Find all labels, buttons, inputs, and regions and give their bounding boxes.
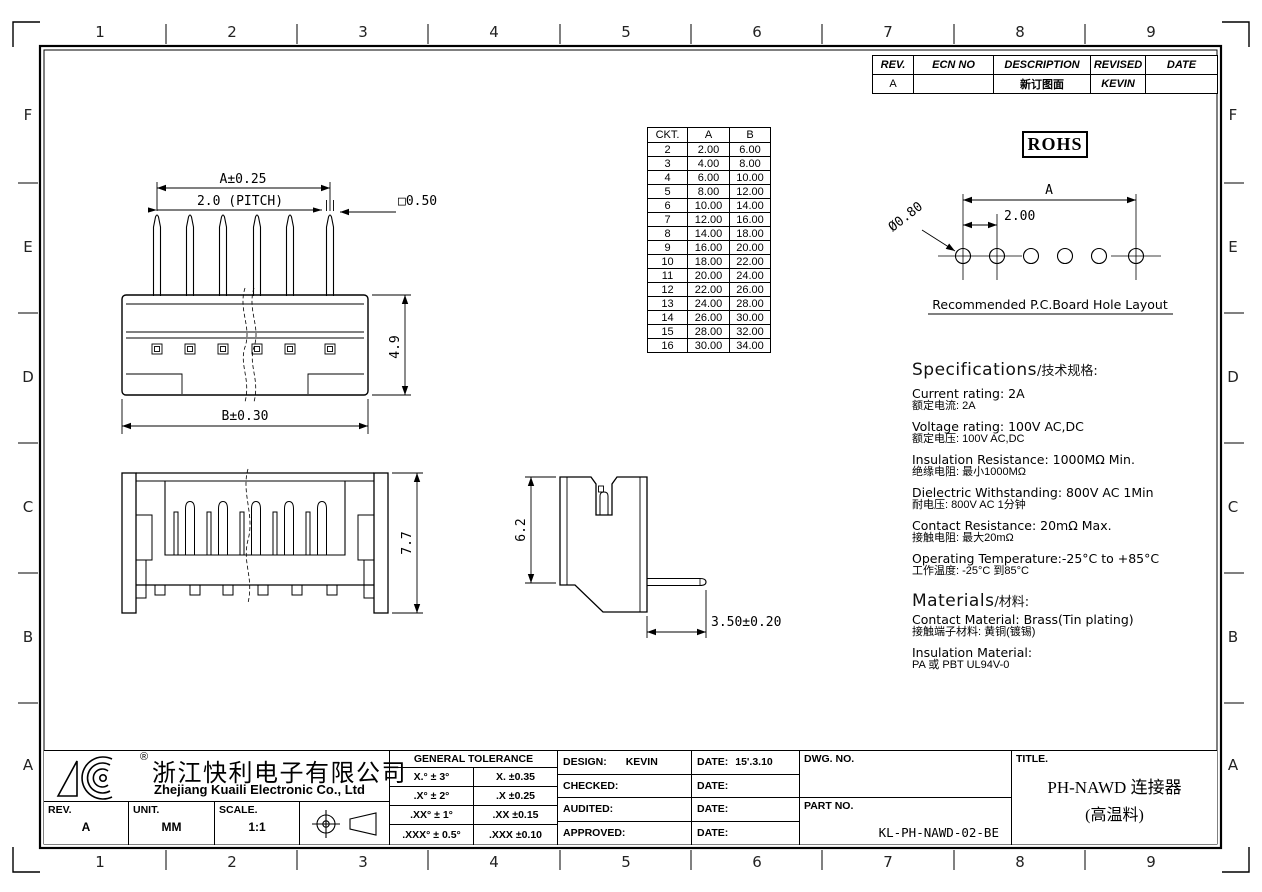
cell: KEVIN [1091,75,1146,94]
specs-heading-zh: /技术规格: [1037,364,1098,379]
cell: 28.00 [730,297,771,311]
cell: 24.00 [730,269,771,283]
approval-row: APPROVED: DATE: [558,822,799,846]
approval-label: DESIGN: [563,756,607,768]
materials-heading-zh: /材料: [994,595,1029,610]
spec-zh: 接触端子材料: 黄铜(镀锡) [912,626,1230,639]
grid-col-label: 8 [1015,853,1025,871]
cell: 6.00 [688,171,730,185]
grid-row-label: C [23,498,33,516]
title-block: ® 浙江快利电子有限公司 Zhejiang Kuaili Electronic … [44,750,1217,844]
grid-col-label: 2 [227,23,237,41]
cell: 22.00 [688,283,730,297]
rohs-label: ROHS [1027,134,1082,155]
tolerance-section: GENERAL TOLERANCE X.° ± 3° X. ±0.35 .X° … [390,751,558,845]
grid-row-label: E [1228,238,1237,256]
dim-label-pitch: 2.0 (PITCH) [197,194,283,209]
grid-col-label: 9 [1146,853,1156,871]
cell: 9 [648,241,688,255]
cell: 32.00 [730,325,771,339]
tolerance-row: .XX° ± 1° .XX ±0.15 [390,806,557,825]
drawing-title-line2: (高温料) [1012,801,1217,825]
column-header: REVISED [1091,56,1146,75]
cell: 14 [648,311,688,325]
approval-row: CHECKED: DATE: [558,775,799,799]
grid-row-label: A [23,756,33,774]
cell: 10 [648,255,688,269]
approval-date-cell: DATE: [692,822,799,846]
title-section: TITLE. PH-NAWD 连接器 (高温料) [1012,751,1217,845]
table-row: 610.0014.00 [648,199,771,213]
spec-en: Voltage rating: 100V AC,DC [912,420,1230,433]
materials-heading-en: Materials [912,591,994,611]
approval-label-cell: AUDITED: [558,798,692,821]
table-row: 46.0010.00 [648,171,771,185]
dim-label-span: A±0.25 [220,172,267,187]
cell: 4 [648,171,688,185]
grid-col-label: 9 [1146,23,1156,41]
corner-mark [1222,22,1249,47]
grid-col-label: 4 [489,853,499,871]
rev-value: A [44,820,128,834]
approval-row: AUDITED: DATE: [558,798,799,822]
approval-row: DESIGN: KEVIN DATE: 15'.3.10 [558,751,799,775]
specifications-section: Specifications/技术规格: Current rating: 2A额… [912,360,1230,672]
cell: 24.00 [688,297,730,311]
tolerance-row: X.° ± 3° X. ±0.35 [390,768,557,787]
connector-pins [154,215,334,296]
cell: .XX° ± 1° [390,806,474,824]
cell: 12 [648,283,688,297]
grid-col-label: 7 [883,23,893,41]
table-row: 916.0020.00 [648,241,771,255]
part-no-value: KL-PH-NAWD-02-BE [800,825,999,840]
rev-label: REV. [48,804,72,816]
cell: 13 [648,297,688,311]
dim-label-pin: □0.50 [398,194,437,209]
spec-item: Current rating: 2A额定电流: 2A [912,387,1230,413]
part-no-label: PART NO. [804,800,853,812]
table-row: 22.006.00 [648,143,771,157]
scale-cell: SCALE. 1:1 [215,802,300,845]
cell: 16.00 [730,213,771,227]
grid-col-label: 1 [95,23,105,41]
cell: .X° ± 2° [390,787,474,805]
cell: .XXX° ± 0.5° [390,825,474,845]
approval-section: DESIGN: KEVIN DATE: 15'.3.10 CHECKED: DA… [558,751,800,845]
cell: 6.00 [730,143,771,157]
table-row: 1630.0034.00 [648,339,771,353]
spec-en: Operating Temperature:-25°C to +85°C [912,552,1230,565]
column-header: A [688,128,730,143]
materials-heading: Materials/材料: [912,591,1230,611]
dimension-lines [525,477,706,638]
cell: 20.00 [730,241,771,255]
spec-en: Contact Material: Brass(Tin plating) [912,613,1230,626]
cell: 12.00 [730,185,771,199]
table-row: 1324.0028.00 [648,297,771,311]
approval-date-cell: DATE: 15'.3.10 [692,751,799,774]
approval-date-cell: DATE: [692,798,799,821]
column-header: CKT. [648,128,688,143]
dim-label-height: 4.9 [388,335,403,358]
ckt-table: CKT. A B 22.006.00 34.008.00 46.0010.00 … [647,127,771,353]
cell: 14.00 [688,227,730,241]
date-label: DATE: [697,780,728,792]
connector-housing [122,469,388,613]
dimension-lines [922,200,1136,251]
spec-item: Operating Temperature:-25°C to +85°C工作温度… [912,552,1230,578]
projection-cell [300,802,389,845]
cell [914,75,994,94]
pin-tail [647,579,706,586]
table-row: 58.0012.00 [648,185,771,199]
grid-col-label: 8 [1015,23,1025,41]
cell: 15 [648,325,688,339]
dim-label-hole-dia: Ø0.80 [886,199,926,235]
scale-label: SCALE. [219,804,258,816]
tolerance-row: .XXX° ± 0.5° .XXX ±0.10 [390,825,557,845]
hole-layout-caption: Recommended P.C.Board Hole Layout [932,297,1168,312]
dwg-no-cell: DWG. NO. [800,751,1011,798]
spec-item: Insulation Resistance: 1000MΩ Min.绝缘电阻: … [912,453,1230,479]
hole-crosshairs [938,194,1161,280]
housing-tabs [155,585,337,595]
front-view-drawing: A±0.25 2.0 (PITCH) □0.50 4.9 B±0.30 [100,155,460,445]
cell: 8 [648,227,688,241]
company-logo-icon [50,754,150,800]
cell: 8.00 [688,185,730,199]
grid-col-label: 7 [883,853,893,871]
cell: 28.00 [688,325,730,339]
date-label: DATE: [697,756,728,768]
cell: 4.00 [688,157,730,171]
cell: 3 [648,157,688,171]
connector-body [122,288,368,402]
cell: 2 [648,143,688,157]
dim-label-height: 6.2 [514,518,529,541]
grid-row-label: F [1229,106,1238,124]
grid-col-label: 3 [358,853,368,871]
drawing-title-line1: PH-NAWD 连接器 [1012,773,1217,798]
grid-col-label: 3 [358,23,368,41]
grid-col-label: 5 [621,23,631,41]
table-row: 1120.0024.00 [648,269,771,283]
approval-label-cell: APPROVED: [558,822,692,846]
material-item: Contact Material: Brass(Tin plating)接触端子… [912,613,1230,639]
column-header: DATE [1146,56,1218,75]
table-row: 1426.0030.00 [648,311,771,325]
dwg-no-label: DWG. NO. [804,753,854,765]
spec-en: Insulation Material: [912,646,1230,659]
dim-label-height: 7.7 [400,531,415,554]
cell: 6 [648,199,688,213]
table-row: 1528.0032.00 [648,325,771,339]
cell: 18.00 [730,227,771,241]
spec-zh: 额定电流: 2A [912,400,1230,413]
approval-label: CHECKED: [563,780,618,792]
column-header: DESCRIPTION [994,56,1091,75]
cell: 26.00 [688,311,730,325]
spec-en: Dielectric Withstanding: 800V AC 1Min [912,486,1230,499]
cell: 7 [648,213,688,227]
spec-zh: 额定电压: 100V AC,DC [912,433,1230,446]
cell: 16 [648,339,688,353]
cell: 新订图面 [994,75,1091,94]
dim-label-span: A [1045,183,1053,198]
approval-date-cell: DATE: [692,775,799,798]
grid-col-label: 1 [95,853,105,871]
corner-mark [13,22,40,47]
cell: 34.00 [730,339,771,353]
date-value: 15'.3.10 [735,756,773,768]
grid-col-label: 5 [621,853,631,871]
cell: 11 [648,269,688,283]
corner-mark [13,847,40,872]
drawing-sheet: 1 2 3 4 5 6 7 8 9 1 2 3 4 5 6 7 8 9 F E … [0,0,1262,892]
connector-profile [560,477,706,612]
grid-row-label: F [24,106,33,124]
cell: 30.00 [730,311,771,325]
cell: 22.00 [730,255,771,269]
specifications-heading: Specifications/技术规格: [912,360,1230,380]
column-header: ECN NO [914,56,994,75]
cell: X.° ± 3° [390,768,474,786]
spec-item: Contact Resistance: 20mΩ Max.接触电阻: 最大20m… [912,519,1230,545]
table-row: 1018.0022.00 [648,255,771,269]
spec-en: Insulation Resistance: 1000MΩ Min. [912,453,1230,466]
spec-zh: 绝缘电阻: 最小1000MΩ [912,466,1230,479]
cell: 2.00 [688,143,730,157]
cell: A [873,75,914,94]
spec-zh: 接触电阻: 最大20mΩ [912,532,1230,545]
approval-label-cell: DESIGN: KEVIN [558,751,692,774]
grid-row-label: B [23,628,33,646]
cell: 5 [648,185,688,199]
cell: 10.00 [688,199,730,213]
cell: .X ±0.25 [474,790,557,802]
table-row: A 新订图面 KEVIN [873,75,1218,94]
cell: 30.00 [688,339,730,353]
cell: 10.00 [730,171,771,185]
dim-label-width: B±0.30 [222,409,269,424]
approval-label: APPROVED: [563,827,625,839]
cell: 12.00 [688,213,730,227]
rev-cell: REV. A [44,802,129,845]
table-row: 1222.0026.00 [648,283,771,297]
company-section: ® 浙江快利电子有限公司 Zhejiang Kuaili Electronic … [44,751,390,845]
projection-symbol-icon [306,805,386,843]
cell [1146,75,1218,94]
tolerance-row: .X° ± 2° .X ±0.25 [390,787,557,806]
cell: 8.00 [730,157,771,171]
unit-value: MM [129,820,214,834]
grid-row-label: D [22,368,34,386]
registered-mark: ® [140,751,148,763]
rohs-badge: ROHS [1022,131,1088,158]
side-view-drawing: 6.2 3.50±0.20 [505,435,795,650]
title-label: TITLE. [1016,753,1048,765]
unit-cell: UNIT. MM [129,802,215,845]
revision-header-row: REV. ECN NO DESCRIPTION REVISED DATE [873,56,1218,75]
dim-label-tail: 3.50±0.20 [711,615,781,630]
company-meta-row: REV. A UNIT. MM SCALE. 1:1 [44,801,389,845]
spec-zh: PA 或 PBT UL94V-0 [912,659,1230,672]
table-row: 814.0018.00 [648,227,771,241]
grid-col-label: 4 [489,23,499,41]
revision-table: REV. ECN NO DESCRIPTION REVISED DATE A 新… [872,55,1218,94]
spec-item: Dielectric Withstanding: 800V AC 1Min耐电压… [912,486,1230,512]
grid-col-label: 6 [752,853,762,871]
scale-value: 1:1 [215,820,299,834]
dim-label-pitch: 2.00 [1004,209,1035,224]
company-name-en: Zhejiang Kuaili Electronic Co., Ltd [154,782,365,797]
grid-row-label: E [23,238,32,256]
column-header: REV. [873,56,914,75]
ckt-header-row: CKT. A B [648,128,771,143]
approval-value: KEVIN [626,756,658,768]
spec-en: Current rating: 2A [912,387,1230,400]
cell: X. ±0.35 [474,771,557,783]
spec-en: Contact Resistance: 20mΩ Max. [912,519,1230,532]
approval-label: AUDITED: [563,803,613,815]
unit-label: UNIT. [133,804,159,816]
dwg-part-section: DWG. NO. PART NO. KL-PH-NAWD-02-BE [800,751,1012,845]
cell: 16.00 [688,241,730,255]
approval-label-cell: CHECKED: [558,775,692,798]
cell: 14.00 [730,199,771,213]
table-row: 34.008.00 [648,157,771,171]
grid-col-label: 2 [227,853,237,871]
hole-layout-drawing: A 2.00 Ø0.80 Recommended P.C.Board Hole … [878,168,1222,326]
spec-zh: 耐电压: 800V AC 1分钟 [912,499,1230,512]
grid-row-label: A [1228,756,1238,774]
table-row: 712.0016.00 [648,213,771,227]
cell: 26.00 [730,283,771,297]
top-view-drawing: 7.7 [90,445,440,640]
spec-item: Voltage rating: 100V AC,DC额定电压: 100V AC,… [912,420,1230,446]
cell: 20.00 [688,269,730,283]
cell: .XX ±0.15 [474,809,557,821]
cell: 18.00 [688,255,730,269]
date-label: DATE: [697,803,728,815]
tolerance-title: GENERAL TOLERANCE [390,751,557,768]
date-label: DATE: [697,827,728,839]
spec-zh: 工作温度: -25°C 到85°C [912,565,1230,578]
cell: .XXX ±0.10 [474,829,557,841]
column-header: B [730,128,771,143]
specs-heading-en: Specifications [912,360,1037,380]
corner-mark [1222,847,1249,872]
part-no-cell: PART NO. KL-PH-NAWD-02-BE [800,798,1011,844]
grid-col-label: 6 [752,23,762,41]
material-item: Insulation Material:PA 或 PBT UL94V-0 [912,646,1230,672]
